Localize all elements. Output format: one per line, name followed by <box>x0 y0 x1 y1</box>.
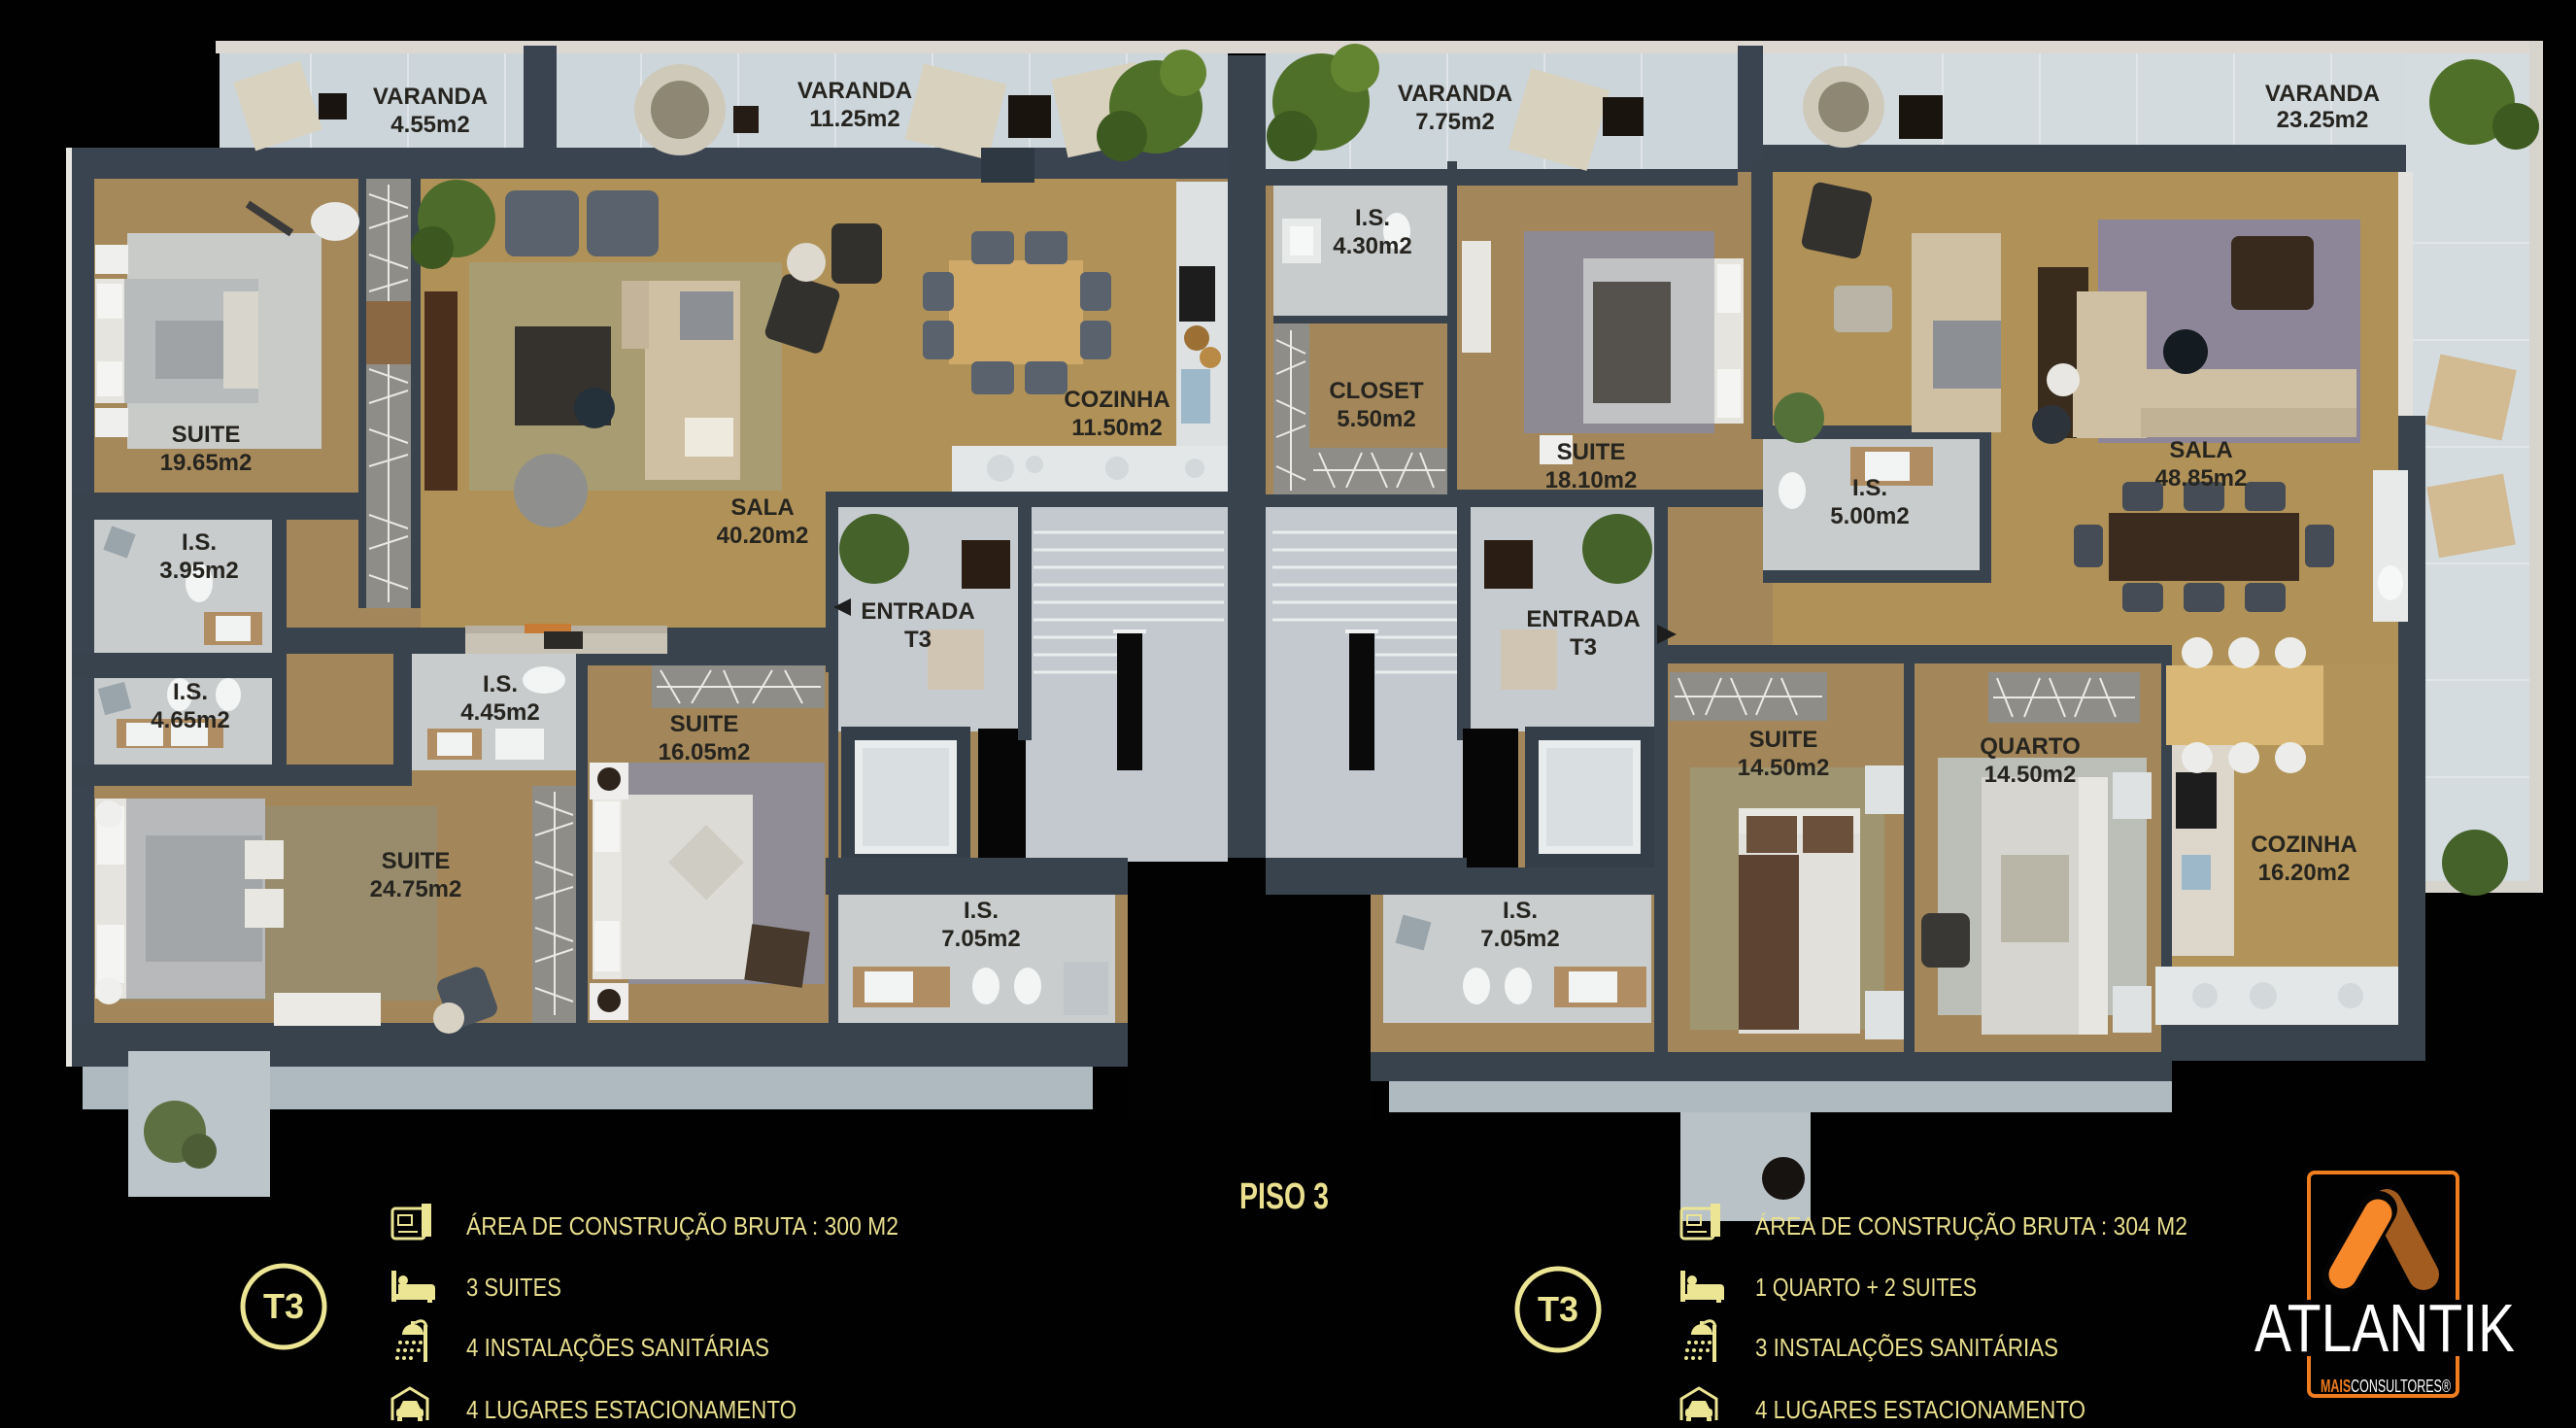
svg-text:4.55m2: 4.55m2 <box>390 112 469 138</box>
svg-text:16.05m2: 16.05m2 <box>659 739 751 765</box>
svg-text:I.S.: I.S. <box>483 671 518 697</box>
svg-text:3 SUITES: 3 SUITES <box>466 1273 561 1302</box>
svg-text:QUARTO: QUARTO <box>1980 733 2081 760</box>
svg-text:48.85m2: 48.85m2 <box>2155 465 2248 492</box>
svg-text:I.S.: I.S. <box>1355 205 1390 231</box>
svg-text:COZINHA: COZINHA <box>1064 387 1169 413</box>
svg-text:3.95m2: 3.95m2 <box>159 558 238 584</box>
svg-text:5.00m2: 5.00m2 <box>1830 503 1909 529</box>
svg-text:T3: T3 <box>1538 1289 1578 1329</box>
svg-text:VARANDA: VARANDA <box>2265 81 2380 107</box>
svg-text:23.25m2: 23.25m2 <box>2277 107 2369 133</box>
svg-text:3 INSTALAÇÕES SANITÁRIAS: 3 INSTALAÇÕES SANITÁRIAS <box>1755 1333 2058 1362</box>
svg-text:VARANDA: VARANDA <box>1398 81 1512 107</box>
svg-text:I.S.: I.S. <box>964 898 999 924</box>
svg-text:14.50m2: 14.50m2 <box>1984 762 2077 788</box>
svg-text:7.05m2: 7.05m2 <box>1480 926 1559 952</box>
svg-text:SALA: SALA <box>2169 437 2232 463</box>
svg-text:40.20m2: 40.20m2 <box>717 523 809 549</box>
svg-text:COZINHA: COZINHA <box>2251 832 2356 858</box>
svg-text:VARANDA: VARANDA <box>797 78 912 104</box>
svg-text:T3: T3 <box>1570 634 1597 661</box>
svg-text:SUITE: SUITE <box>172 422 241 448</box>
svg-text:T3: T3 <box>904 627 932 653</box>
svg-text:11.25m2: 11.25m2 <box>809 106 899 132</box>
svg-text:SUITE: SUITE <box>1557 439 1626 465</box>
svg-text:I.S.: I.S. <box>1503 898 1538 924</box>
svg-text:11.50m2: 11.50m2 <box>1071 415 1162 441</box>
svg-text:16.20m2: 16.20m2 <box>2258 860 2351 886</box>
svg-text:24.75m2: 24.75m2 <box>370 876 462 902</box>
svg-text:SUITE: SUITE <box>670 711 739 737</box>
svg-text:CLOSET: CLOSET <box>1329 378 1424 404</box>
svg-text:19.65m2: 19.65m2 <box>160 450 253 476</box>
svg-text:4.65m2: 4.65m2 <box>151 707 229 733</box>
svg-text:7.05m2: 7.05m2 <box>941 926 1020 952</box>
svg-text:ATLANTIK: ATLANTIK <box>2254 1290 2515 1366</box>
svg-text:SALA: SALA <box>730 494 794 521</box>
svg-text:4 LUGARES ESTACIONAMENTO: 4 LUGARES ESTACIONAMENTO <box>466 1395 797 1424</box>
svg-text:VARANDA: VARANDA <box>373 84 488 110</box>
svg-text:ENTRADA: ENTRADA <box>861 598 974 625</box>
svg-text:4 LUGARES ESTACIONAMENTO: 4 LUGARES ESTACIONAMENTO <box>1755 1395 2085 1424</box>
svg-text:ENTRADA: ENTRADA <box>1526 606 1640 632</box>
svg-text:4 INSTALAÇÕES SANITÁRIAS: 4 INSTALAÇÕES SANITÁRIAS <box>466 1333 769 1362</box>
svg-text:I.S.: I.S. <box>1852 475 1887 501</box>
svg-text:SUITE: SUITE <box>1749 727 1818 753</box>
svg-text:14.50m2: 14.50m2 <box>1738 755 1830 781</box>
svg-text:4.30m2: 4.30m2 <box>1333 233 1411 259</box>
svg-text:SUITE: SUITE <box>382 848 451 874</box>
svg-text:I.S.: I.S. <box>173 679 208 705</box>
svg-text:ÁREA DE CONSTRUÇÃO BRUTA : 30: ÁREA DE CONSTRUÇÃO BRUTA : 304 M2 <box>1755 1211 2187 1241</box>
svg-text:MAISCONSULTORES®: MAISCONSULTORES® <box>2321 1377 2451 1396</box>
svg-text:T3: T3 <box>263 1286 304 1326</box>
svg-text:5.50m2: 5.50m2 <box>1337 406 1415 432</box>
svg-text:PISO 3: PISO 3 <box>1239 1176 1329 1217</box>
svg-text:18.10m2: 18.10m2 <box>1545 467 1638 493</box>
svg-text:4.45m2: 4.45m2 <box>460 699 539 726</box>
svg-text:I.S.: I.S. <box>182 529 217 556</box>
svg-text:7.75m2: 7.75m2 <box>1415 109 1494 135</box>
svg-text:1 QUARTO + 2 SUITES: 1 QUARTO + 2 SUITES <box>1755 1273 1977 1302</box>
svg-text:ÁREA DE CONSTRUÇÃO BRUTA : 30: ÁREA DE CONSTRUÇÃO BRUTA : 300 M2 <box>466 1211 898 1241</box>
